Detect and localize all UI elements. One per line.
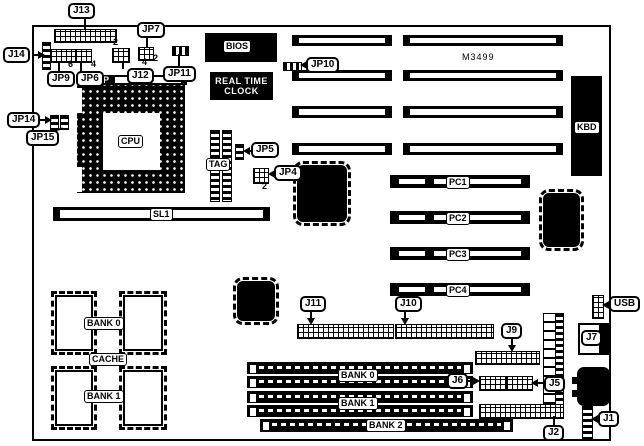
pc2-label: PC2 — [446, 212, 470, 225]
callout-j10: J10 — [395, 296, 422, 312]
j9-header — [475, 351, 540, 365]
leader-j9-arrow — [508, 345, 516, 352]
leader-jp14-arrow — [45, 116, 52, 124]
callout-jp11: JP11 — [163, 66, 196, 82]
callout-usb: USB — [609, 296, 640, 312]
cache-bank1-label: BANK 1 — [84, 390, 124, 403]
din-tab — [572, 377, 578, 384]
leader-usb-arrow — [602, 301, 609, 309]
simm-clip — [249, 393, 257, 403]
motherboard-diagram: J13 2 JP7 2 J14 6 JP9 4 JP6 4 J12 JP11 J… — [0, 0, 644, 446]
callout-j6: J6 — [447, 373, 468, 389]
callout-j9: J9 — [501, 323, 522, 339]
pin1-marker: P — [103, 76, 109, 85]
callout-jp4: JP4 — [274, 165, 302, 181]
cache-label: CACHE — [89, 353, 127, 366]
leader-j11-arrow — [307, 318, 315, 325]
callout-j2: J2 — [543, 425, 564, 441]
tag-label: TAG — [206, 158, 230, 171]
isa-slot — [403, 35, 563, 46]
j2-header — [479, 404, 564, 419]
j6-header — [479, 376, 506, 391]
cache-bank0-label: BANK 0 — [84, 317, 124, 330]
bios-label: BIOS — [223, 40, 251, 53]
callout-j7: J7 — [581, 330, 602, 346]
simm-clip — [249, 407, 257, 417]
jp11-connector — [172, 46, 189, 56]
cache-chip — [123, 370, 163, 426]
j13-header — [54, 29, 117, 43]
jp7-pin2: 2 — [153, 54, 158, 63]
qfp-chip — [297, 165, 347, 222]
din-keyboard-connector — [577, 367, 610, 406]
simm-clip — [249, 378, 257, 388]
pc1-label: PC1 — [446, 176, 470, 189]
isa-slot — [292, 35, 392, 46]
j12-pin4: 4 — [142, 58, 147, 67]
callout-jp9: JP9 — [47, 71, 75, 87]
callout-jp5: JP5 — [251, 142, 279, 158]
jp6-header — [75, 49, 92, 63]
isa-slot — [292, 106, 392, 118]
leader-j14-arrow — [38, 51, 45, 59]
pc4-label: PC4 — [446, 284, 470, 297]
jp6-pin4: 4 — [91, 60, 96, 69]
simm-bank2-label: BANK 2 — [366, 419, 406, 432]
jp9-pin6: 6 — [68, 60, 73, 69]
j13-pin2: 2 — [113, 38, 118, 47]
leader-j12 — [122, 61, 124, 69]
simm-clip — [262, 421, 270, 431]
j11-header — [297, 324, 394, 339]
leader-j10-arrow — [401, 318, 409, 325]
rtc-label: REAL TIME CLOCK — [210, 76, 273, 96]
socket-notch — [77, 167, 82, 192]
callout-j14: J14 — [3, 47, 30, 63]
cpu-label: CPU — [118, 135, 143, 148]
isa-slot — [403, 70, 563, 81]
simm-clip — [463, 407, 471, 417]
din-tab — [572, 390, 578, 397]
callout-j5: J5 — [544, 376, 565, 392]
j5-header — [506, 376, 533, 391]
isa-slot — [292, 143, 392, 155]
callout-jp7: JP7 — [137, 22, 165, 38]
j1-connector — [582, 406, 593, 440]
sl1-label: SL1 — [150, 208, 173, 221]
callout-j12: J12 — [127, 68, 154, 84]
callout-jp15: JP15 — [26, 130, 59, 146]
callout-j11: J11 — [300, 296, 326, 312]
isa-slot — [403, 106, 563, 118]
callout-jp14: JP14 — [7, 112, 40, 128]
qfp-chip — [543, 193, 580, 247]
callout-j13: J13 — [68, 3, 95, 19]
leader-j6-arrow — [473, 377, 480, 385]
callout-jp10: JP10 — [306, 57, 339, 73]
j10-header — [395, 324, 494, 339]
callout-j1: J1 — [598, 411, 619, 427]
kbd-label: KBD — [574, 121, 600, 134]
simm-clip — [249, 364, 257, 374]
qfp-chip — [237, 281, 275, 321]
j12-header — [112, 48, 130, 63]
jp4-pin2: 2 — [262, 182, 267, 191]
simm-clip — [463, 393, 471, 403]
simm-bank0-label: BANK 0 — [338, 369, 378, 382]
socket-notch — [77, 88, 82, 113]
pc3-label: PC3 — [446, 248, 470, 261]
simm-clip — [503, 421, 511, 431]
rtc-chip: REAL TIME CLOCK — [210, 72, 273, 100]
model-number: M3499 — [462, 52, 495, 62]
cache-chip — [123, 295, 163, 351]
leader-j1-arrow — [591, 415, 598, 423]
isa-slot — [403, 143, 563, 155]
callout-jp6: JP6 — [76, 71, 104, 87]
simm-bank1-label: BANK 1 — [338, 397, 378, 410]
